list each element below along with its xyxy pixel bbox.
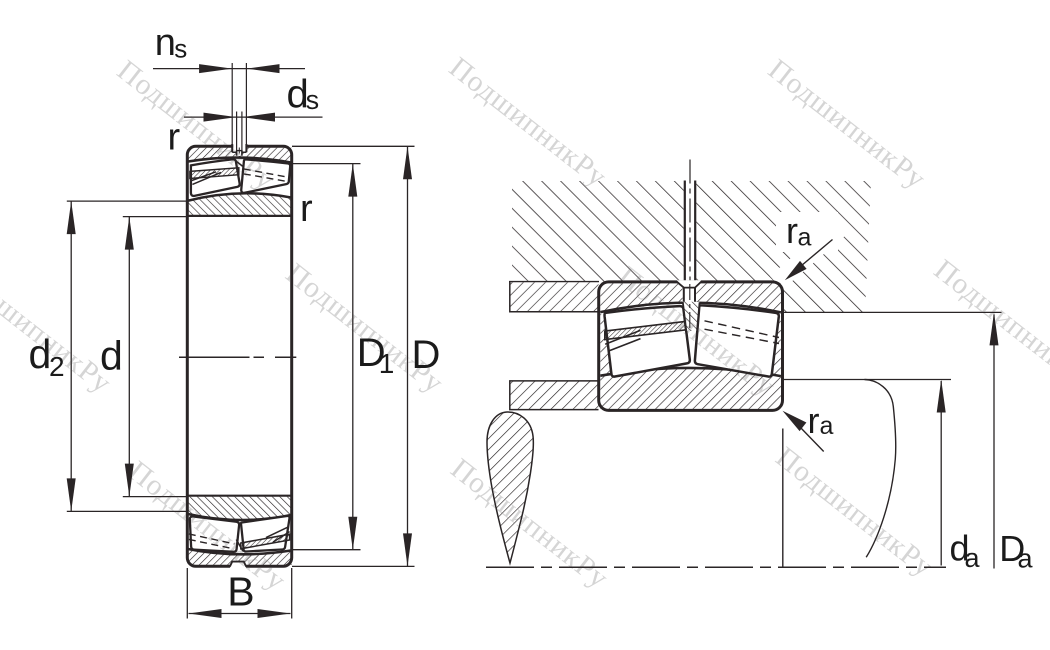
svg-text:a: a (1018, 543, 1034, 573)
svg-text:s: s (306, 85, 320, 115)
svg-text:n: n (155, 22, 176, 64)
svg-text:s: s (174, 34, 187, 64)
svg-text:ПодшипникРу: ПодшипникРу (770, 441, 940, 583)
svg-text:r: r (300, 188, 313, 230)
svg-text:r: r (786, 210, 798, 251)
svg-text:r: r (808, 400, 820, 441)
svg-text:a: a (965, 543, 981, 573)
svg-text:a: a (798, 224, 812, 252)
svg-text:a: a (820, 412, 834, 440)
svg-text:ПодшипникРу: ПодшипникРу (928, 254, 1050, 396)
svg-text:ПодшипникРу: ПодшипникРу (280, 257, 450, 399)
svg-text:ПодшипникРу: ПодшипникРу (443, 51, 613, 193)
svg-text:ПодшипникРу: ПодшипникРу (762, 53, 932, 195)
